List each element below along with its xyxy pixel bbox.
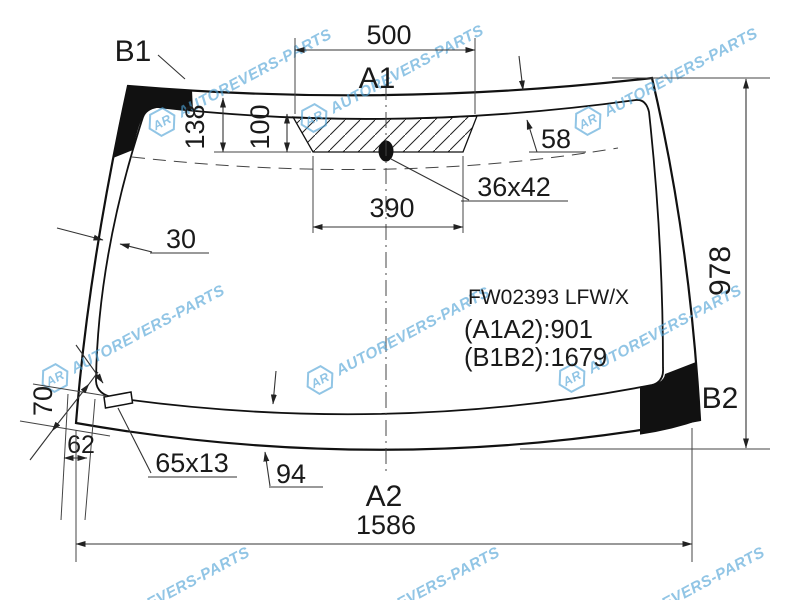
- extension-line: [20, 421, 110, 436]
- point-b1: B1: [115, 35, 185, 79]
- extension-line: [85, 399, 95, 520]
- black-corner-b2: [640, 362, 700, 435]
- dim-62-text: 62: [67, 431, 95, 459]
- watermark-top-right: AR AUTOREVERS-PARTS: [570, 21, 762, 138]
- windshield-drawing-page: AR AUTOREVERS-PARTS AR AUTOREVERS-PARTS …: [0, 0, 800, 600]
- dim-978-text: 978: [704, 246, 737, 296]
- watermark-text: AUTOREVERS-PARTS: [607, 544, 768, 600]
- watermark-bottom-left-partial: AUTOREVERS-PARTS: [92, 544, 253, 600]
- watermark-text: AUTOREVERS-PARTS: [342, 544, 503, 600]
- dim-1586-text: 1586: [356, 510, 416, 540]
- leader-line: [118, 408, 151, 473]
- dimension-top-band-58: 58: [519, 56, 586, 154]
- dimension-bracket-65x13: 65x13: [76, 345, 237, 478]
- distance-a1a2-text: (A1A2):901: [464, 316, 593, 344]
- dimension-edge-band-30: 30: [57, 224, 209, 254]
- edge-pointer-arrow: [273, 371, 276, 404]
- distance-b1b2-text: (B1B2):1679: [464, 344, 607, 372]
- dimension-sensor-36x42: 36x42: [391, 159, 568, 202]
- dim-94-text: 94: [276, 459, 306, 489]
- point-label-b2: B2: [702, 382, 739, 415]
- point-label-b1: B1: [115, 35, 152, 68]
- dim-138-text: 138: [180, 104, 210, 149]
- watermark-bottom-right-partial: AUTOREVERS-PARTS: [607, 544, 768, 600]
- leader-arrow: [120, 244, 152, 252]
- watermark-text: AUTOREVERS-PARTS: [92, 544, 253, 600]
- dim-500-text: 500: [366, 20, 411, 50]
- dimension-band-100: 100: [245, 104, 287, 152]
- dim-65x13-text: 65x13: [155, 448, 229, 478]
- watermark-text: AUTOREVERS-PARTS: [67, 282, 228, 378]
- dim-58-text: 58: [541, 124, 571, 154]
- leader-arrow: [57, 228, 103, 240]
- dim-30-text: 30: [166, 224, 196, 254]
- dim-36x42-text: 36x42: [477, 172, 551, 202]
- leader-arrow: [527, 120, 537, 152]
- dimension-tail: [30, 431, 52, 460]
- dim-100-text: 100: [245, 104, 275, 149]
- windshield-diagram: AR AUTOREVERS-PARTS AR AUTOREVERS-PARTS …: [0, 0, 800, 600]
- edge-pointer-arrow: [519, 56, 523, 90]
- point-label-a2: A2: [366, 480, 403, 513]
- part-code-text: FW02393 LFW/X: [468, 286, 629, 309]
- watermark-mid-left: AR AUTOREVERS-PARTS: [37, 278, 229, 395]
- watermark-text: AUTOREVERS-PARTS: [600, 25, 761, 121]
- dim-70-text: 70: [28, 386, 58, 416]
- leader-line: [158, 55, 185, 79]
- leader-arrow: [265, 452, 270, 486]
- part-info-block: FW02393 LFW/X (A1A2):901 (B1B2):1679: [464, 286, 629, 372]
- windshield-outline: [76, 78, 700, 472]
- dim-390-text: 390: [369, 193, 414, 223]
- watermark-bottom-center-partial: AUTOREVERS-PARTS: [342, 544, 503, 600]
- point-label-a1: A1: [359, 62, 396, 95]
- dimension-sensor-band-390: 390: [313, 156, 463, 233]
- bracket-rectangle: [104, 392, 133, 408]
